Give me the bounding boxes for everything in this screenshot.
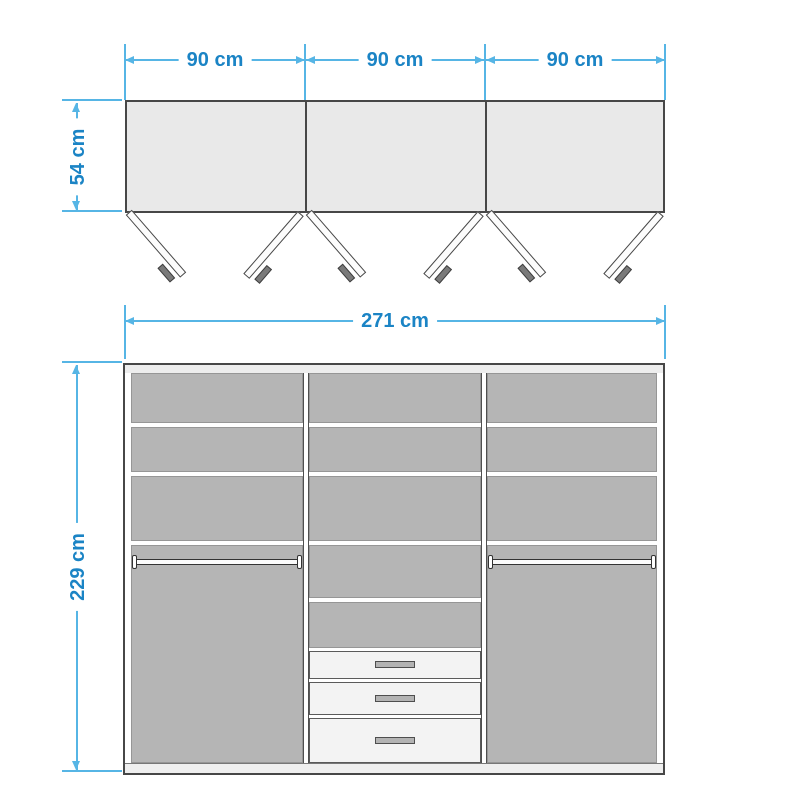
drawer: [309, 718, 481, 763]
open-door: [126, 210, 186, 278]
rail-end-cap: [651, 555, 656, 569]
arrow-down-icon: [72, 761, 80, 770]
drawer-handle: [375, 737, 415, 744]
shelf-compartment: [487, 373, 657, 423]
shelf-compartment: [309, 427, 481, 472]
wardrobe-dimension-diagram: 90 cm 90 cm 90 cm 54 cm: [0, 0, 800, 800]
drawer: [309, 682, 481, 715]
extension-line: [62, 770, 122, 772]
arrow-right-icon: [475, 56, 484, 64]
open-door: [603, 211, 663, 279]
open-door: [486, 210, 546, 278]
arrow-left-icon: [306, 56, 315, 64]
top-view-carcass: [125, 100, 665, 213]
shelf-compartment: [309, 602, 481, 648]
panel-width-dimension-label: 90 cm: [539, 49, 612, 71]
extension-line: [124, 44, 126, 100]
hanging-rail: [489, 558, 655, 564]
height-dimension-label: 229 cm: [67, 523, 89, 611]
extension-line: [664, 44, 666, 100]
rail-bar: [492, 559, 652, 565]
hanging-compartment: [131, 545, 303, 763]
shelf-compartment: [131, 476, 303, 541]
wardrobe-front-view: [123, 363, 665, 775]
rail-end-cap: [297, 555, 302, 569]
panel-width-dimension-label: 90 cm: [179, 49, 252, 71]
depth-dimension-label: 54 cm: [67, 119, 89, 196]
arrow-up-icon: [72, 103, 80, 112]
open-door: [423, 211, 483, 279]
arrow-left-icon: [125, 56, 134, 64]
drawer-handle: [375, 661, 415, 668]
arrow-right-icon: [656, 317, 665, 325]
door-handle: [254, 265, 272, 284]
top-panel: [125, 365, 663, 373]
arrow-up-icon: [72, 365, 80, 374]
total-width-dimension-label: 271 cm: [353, 310, 437, 332]
open-door: [306, 210, 366, 278]
arrow-right-icon: [656, 56, 665, 64]
shelf-compartment: [309, 373, 481, 423]
arrow-right-icon: [296, 56, 305, 64]
arrow-left-icon: [486, 56, 495, 64]
door-handle: [157, 264, 175, 283]
shelf-compartment: [131, 427, 303, 472]
extension-line: [62, 210, 122, 212]
open-door: [243, 211, 303, 279]
door-handle: [517, 264, 535, 283]
extension-line: [664, 305, 666, 359]
hanging-compartment: [487, 545, 657, 763]
shelf-compartment: [309, 476, 481, 541]
door-handle: [614, 265, 632, 284]
panel-divider: [485, 102, 487, 211]
extension-line: [484, 44, 486, 100]
extension-line: [62, 99, 122, 101]
door-handle: [337, 264, 355, 283]
panel-divider: [305, 102, 307, 211]
plinth: [125, 763, 663, 773]
hanging-rail: [133, 558, 301, 564]
shelf-compartment: [487, 476, 657, 541]
extension-line: [124, 305, 126, 359]
arrow-left-icon: [125, 317, 134, 325]
shelf-compartment: [487, 427, 657, 472]
arrow-down-icon: [72, 201, 80, 210]
shelf-compartment: [309, 545, 481, 598]
panel-width-dimension-label: 90 cm: [359, 49, 432, 71]
shelf-compartment: [131, 373, 303, 423]
drawer: [309, 651, 481, 679]
extension-line: [304, 44, 306, 100]
extension-line: [62, 361, 122, 363]
rail-bar: [136, 559, 298, 565]
drawer-handle: [375, 695, 415, 702]
door-handle: [434, 265, 452, 284]
